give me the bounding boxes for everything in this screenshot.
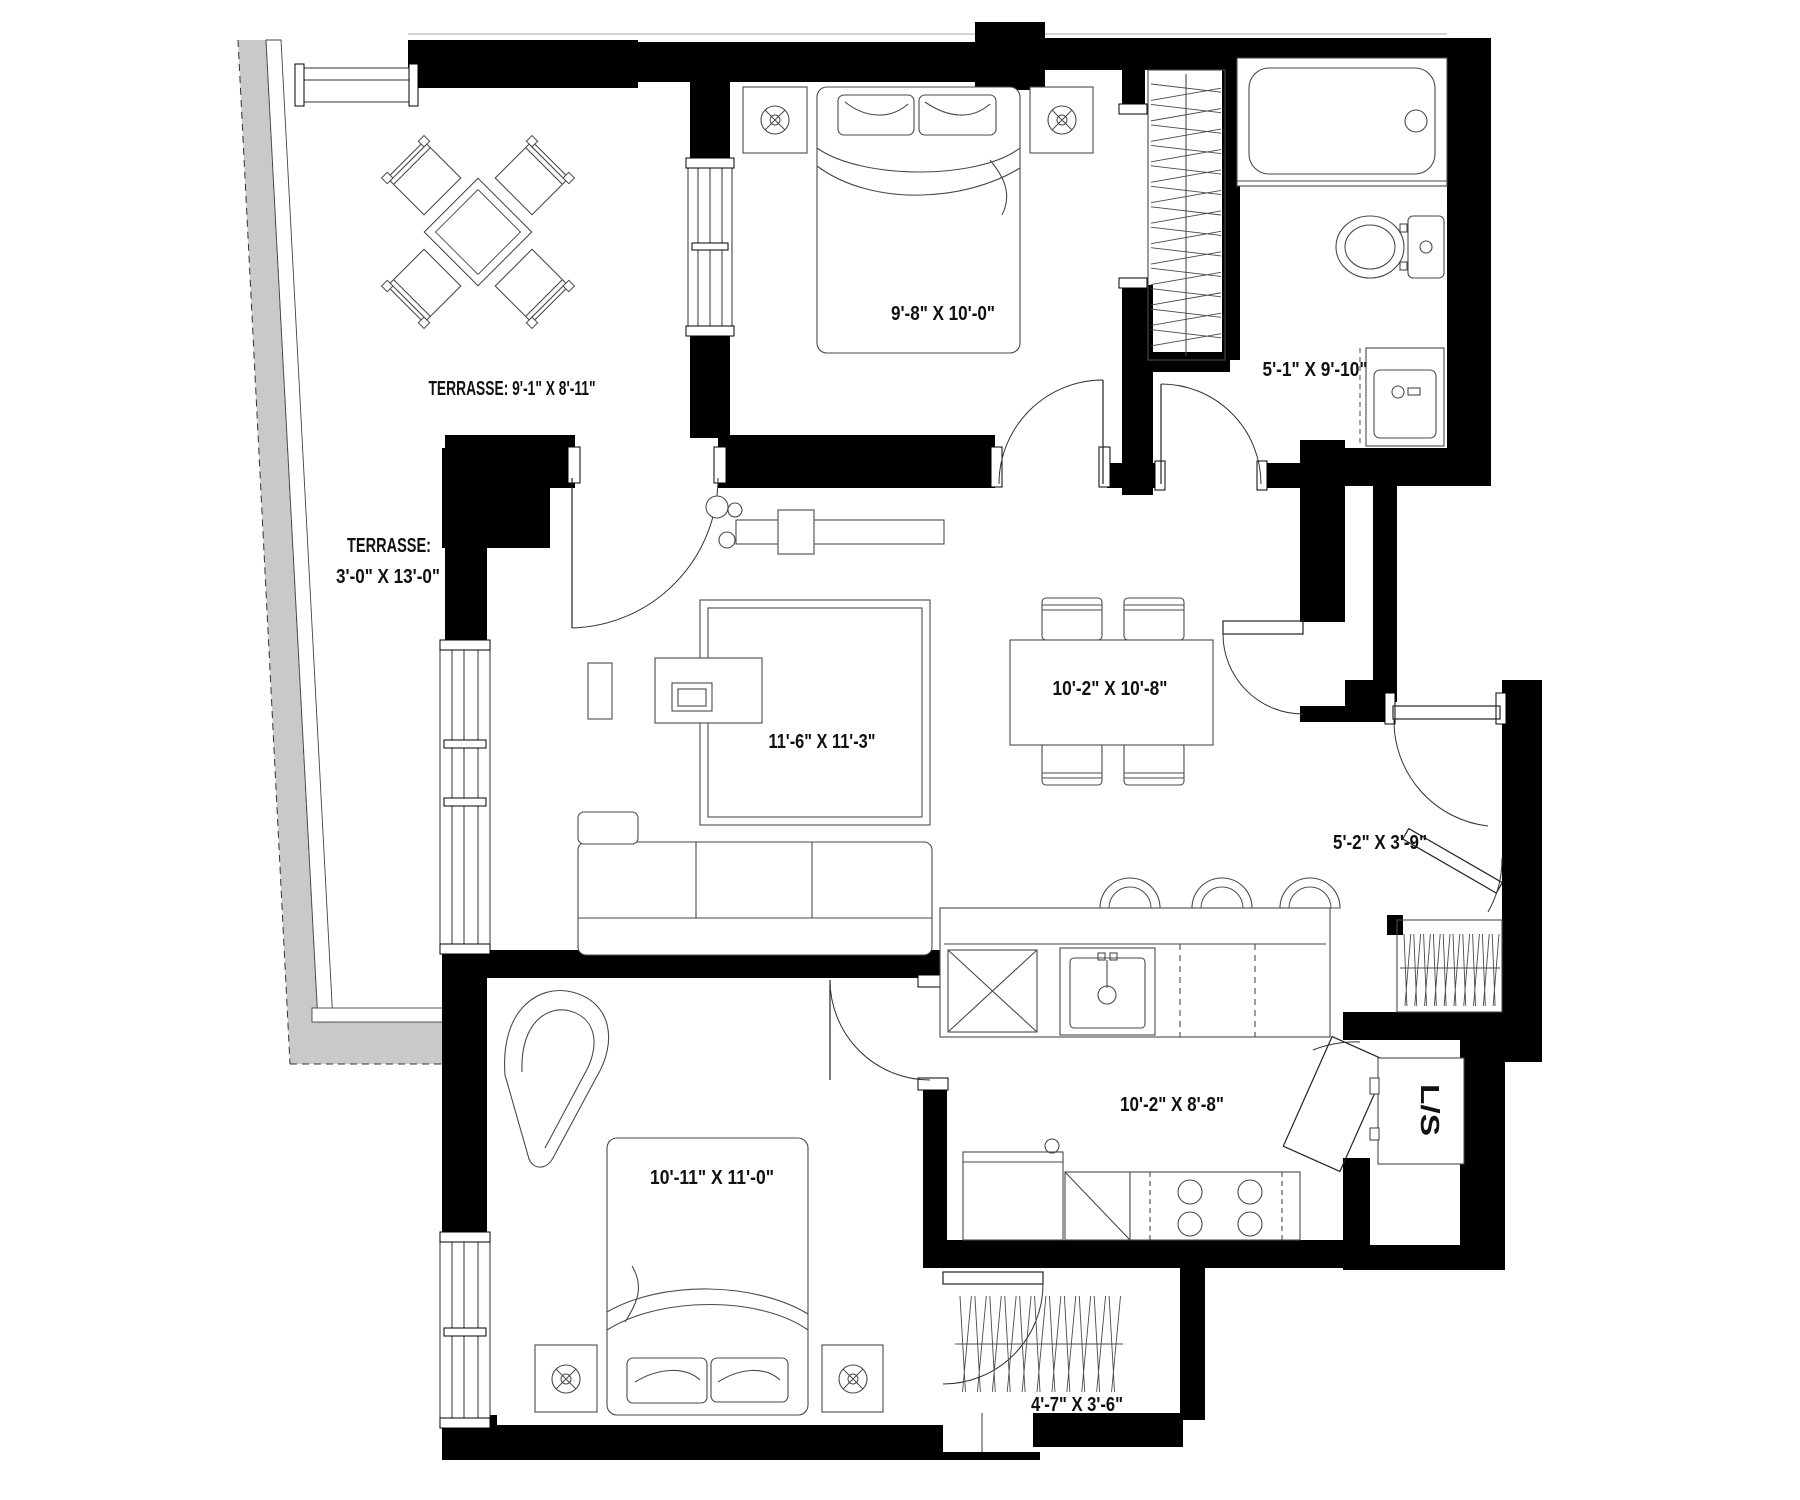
wall-bedroom2-bottom — [495, 1425, 943, 1460]
armchair-icon — [505, 991, 609, 1168]
coffee-table-icon — [588, 658, 762, 723]
wall-entry-closet-jamb — [1387, 915, 1403, 935]
bathroom-fixtures — [1237, 58, 1447, 446]
wall-entry-right — [1502, 680, 1542, 1062]
lamp-icon — [839, 1365, 867, 1393]
label-bedroom-second: 10'-11" X 11'-0" — [650, 1167, 774, 1189]
wall-kitchen-bottom — [923, 1240, 1343, 1268]
label-dining: 10'-2" X 10'-8" — [1053, 678, 1168, 700]
wall-living-west-corner — [442, 448, 550, 548]
toilet-icon — [1336, 216, 1444, 278]
label-kitchen: 10'-2" X 8'-8" — [1120, 1094, 1224, 1116]
wall-top-step — [975, 22, 1045, 90]
label-bedroom-primary: 9'-8" X 10'-0" — [891, 303, 995, 325]
wall-bedroom1-bottom — [718, 435, 995, 488]
wall-hall-jamb2 — [1261, 463, 1305, 488]
wall-bedroom1-east-upper — [1122, 40, 1145, 110]
door-bedroom2 — [830, 975, 948, 1090]
wall-bedroom2-west-upper — [442, 950, 487, 1245]
door-bedroom1 — [991, 380, 1110, 487]
wall-dining-east-lower — [1300, 706, 1345, 722]
door-main-entrance — [1385, 693, 1506, 826]
lamp-icon — [1048, 106, 1076, 134]
wall-bedroom1-west-upper — [690, 82, 730, 168]
label-terrace-side-1: TERRASSE: — [347, 535, 431, 557]
floor-plan-drawing: TERRASSE: 9'-1" X 8'-11" TERRASSE: 3'-0"… — [0, 0, 1800, 1500]
stove-icon — [1130, 1172, 1300, 1240]
hangers-icon — [1404, 934, 1499, 1006]
label-closet-bedroom2: 4'-7" X 3'-6" — [1031, 1394, 1123, 1416]
bar-stool-icon — [1280, 878, 1340, 908]
label-living: 11'-6" X 11'-3" — [769, 731, 876, 753]
door-terrace-living — [568, 447, 726, 628]
kitchen-fixtures — [940, 878, 1340, 1240]
window-bedroom1-west — [686, 158, 734, 336]
dining-chair-icon — [1124, 743, 1184, 785]
dining-chair-icon — [1042, 598, 1102, 640]
wall-bedroom1-west-lower — [690, 328, 730, 438]
wall-ls-left-lower — [1343, 1158, 1370, 1270]
lamp-icon — [761, 106, 789, 134]
desk-icon — [706, 496, 944, 554]
fridge-icon — [963, 1139, 1063, 1240]
wall-closet2-bottom — [1033, 1413, 1183, 1447]
wall-living-west — [445, 548, 487, 648]
dining-chair-icon — [1124, 598, 1184, 640]
lamp-icon — [552, 1365, 580, 1393]
terrace-patio-set — [382, 136, 575, 329]
desk-chair-icon — [706, 496, 728, 518]
wall-entry-closet-bottom — [1343, 1012, 1505, 1040]
railing-terrace-top — [295, 64, 418, 106]
label-terrace-main: TERRASSE: 9'-1" X 8'-11" — [429, 378, 596, 400]
corner-cabinet-icon — [1065, 1172, 1130, 1240]
dining-chair-icon — [1042, 743, 1102, 785]
bathtub-icon — [1237, 58, 1447, 186]
entry-closet — [1397, 920, 1502, 1012]
wall-closet1-bottom — [1145, 352, 1230, 372]
bar-stool-icon — [1192, 878, 1252, 908]
floor-plan-page: TERRASSE: 9'-1" X 8'-11" TERRASSE: 3'-0"… — [0, 0, 1800, 1500]
label-entry: 5'-2" X 3'-9" — [1333, 832, 1427, 854]
bedroom-second-furniture — [505, 991, 883, 1415]
living-room-furniture — [578, 496, 944, 955]
wall-closet2-east — [1180, 1240, 1205, 1420]
label-laundry-storage: L/S — [1415, 1084, 1445, 1136]
wall-right-upper — [1447, 38, 1491, 458]
wall-bottom-closure — [940, 1452, 1040, 1460]
wall-dining-east-upper — [1300, 440, 1345, 622]
door-juliet-dining — [1223, 621, 1303, 714]
label-terrace-side-2: 3'-0" X 13'-0" — [336, 566, 440, 588]
wall-juliet-outer — [1373, 486, 1397, 702]
wall-terrace-top — [408, 40, 638, 88]
door-bathroom — [1155, 384, 1267, 490]
island-sink-icon — [1060, 948, 1155, 1035]
kitchen-island-icon — [940, 908, 1330, 1037]
window-bedroom2-west — [440, 1232, 490, 1428]
door-laundry — [1283, 1037, 1388, 1172]
bar-stool-icon — [1100, 878, 1160, 908]
label-bathroom: 5'-1" X 9'-10" — [1263, 359, 1368, 381]
wall-ls-right — [1460, 1038, 1505, 1270]
sofa-icon — [578, 812, 932, 955]
wall-bedroom1-top — [638, 42, 983, 82]
vanity-sink-icon — [1360, 348, 1444, 446]
window-living-west — [440, 640, 490, 954]
